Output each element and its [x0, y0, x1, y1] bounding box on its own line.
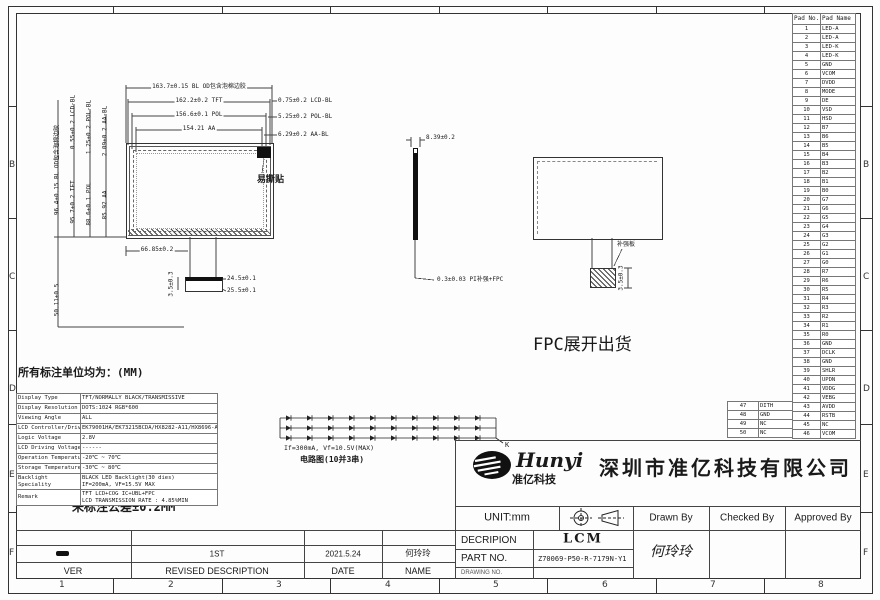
- table-cell: B3: [821, 160, 856, 169]
- table-cell: 12: [793, 124, 821, 133]
- stiffener-label: 补强板: [617, 242, 635, 249]
- table-cell: 26: [793, 250, 821, 259]
- table-cell: R0: [821, 331, 856, 340]
- table-cell: DE: [821, 97, 856, 106]
- table-row: 40UPDN: [793, 376, 856, 385]
- revision-date-value: 2021.5.24: [325, 549, 361, 558]
- table-cell: B0: [821, 187, 856, 196]
- table-cell: 37: [793, 349, 821, 358]
- table-cell: EK79001HA/EK73215BCDA/HX8282-A11/HX8696-…: [81, 424, 218, 434]
- table-cell: R5: [821, 286, 856, 295]
- dim-tft-width: 162.2±0.2 TFT: [175, 98, 224, 105]
- table-cell: 45: [793, 421, 821, 430]
- dim-thickness: 8.39±0.2: [426, 135, 455, 142]
- table-row: 3LED-K: [793, 43, 856, 52]
- table-cell: 19: [793, 187, 821, 196]
- table-cell: 34: [793, 322, 821, 331]
- table-cell: Logic Voltage: [17, 434, 81, 444]
- table-cell: 43: [793, 403, 821, 412]
- table-cell: LCD Controller/Driver: [17, 424, 81, 434]
- table-row: LCD Controller/DriverEK79001HA/EK73215BC…: [17, 424, 218, 434]
- table-row: 2LED-A: [793, 34, 856, 43]
- table-cell: Remark: [17, 490, 81, 506]
- table-cell: 42: [793, 394, 821, 403]
- spec-table: Display TypeTFT/NORMALLY BLACK/TRANSMISS…: [16, 393, 218, 506]
- table-cell: 13: [793, 133, 821, 142]
- table-row: 29R6: [793, 277, 856, 286]
- table-row: 30R5: [793, 286, 856, 295]
- rear-inner-dash-top: [537, 161, 657, 162]
- table-row: 14B5: [793, 142, 856, 151]
- table-row: 50NC: [728, 429, 793, 438]
- pad-no-header: Pad No.: [793, 14, 821, 25]
- table-cell: 28: [793, 268, 821, 277]
- table-cell: 35: [793, 331, 821, 340]
- table-row: 44RSTB: [793, 412, 856, 421]
- table-cell: G2: [821, 241, 856, 250]
- dim-fpc-tail: 3.5±0.3: [619, 265, 626, 290]
- table-cell: 10: [793, 106, 821, 115]
- led-circuit-note: 电路图(10并3串): [300, 455, 364, 464]
- dim-fpc-offset: 66.85±0.2: [140, 247, 175, 254]
- description-value: LCM: [563, 533, 603, 548]
- table-row: 4LED-K: [793, 52, 856, 61]
- table-cell: 29: [793, 277, 821, 286]
- table-row: 26G1: [793, 250, 856, 259]
- table-cell: 48: [728, 411, 759, 420]
- drawn-by-label: Drawn By: [649, 512, 692, 524]
- table-row: 13B6: [793, 133, 856, 142]
- table-row: Storage Temperature-30℃ ~ 80℃: [17, 464, 218, 474]
- table-cell: RSTB: [821, 412, 856, 421]
- table-row: 41VDDG: [793, 385, 856, 394]
- table-cell: 30: [793, 286, 821, 295]
- side-view-glass-notch: [414, 149, 417, 153]
- table-row: 47DITH: [728, 402, 793, 411]
- table-cell: LED-K: [821, 43, 856, 52]
- table-cell: Viewing Angle: [17, 414, 81, 424]
- table-row: 9DE: [793, 97, 856, 106]
- table-cell: VDDG: [821, 385, 856, 394]
- dim-lcd-bl-right: 0.75±0.2 LCD-BL: [278, 98, 332, 105]
- revision-stamp-icon: [56, 551, 69, 556]
- table-cell: 46: [793, 430, 821, 439]
- table-cell: 17: [793, 169, 821, 178]
- pad-name-header: Pad Name: [821, 14, 856, 25]
- table-row: 36GND: [793, 340, 856, 349]
- table-cell: 40: [793, 376, 821, 385]
- checked-by-label: Checked By: [720, 512, 774, 524]
- table-cell: 18: [793, 178, 821, 187]
- table-cell: AVDD: [821, 403, 856, 412]
- table-cell: 15: [793, 151, 821, 160]
- table-row: 22G5: [793, 214, 856, 223]
- table-row: 24G3: [793, 232, 856, 241]
- table-cell: 20: [793, 196, 821, 205]
- table-cell: 11: [793, 115, 821, 124]
- table-cell: R1: [821, 322, 856, 331]
- fpc-unfold-label: FPC展开出货: [533, 336, 632, 356]
- brand-name: Hunyi: [516, 449, 583, 472]
- table-row: 5GND: [793, 61, 856, 70]
- revision-header-description: REVISED DESCRIPTION: [165, 566, 269, 576]
- table-row: 28R7: [793, 268, 856, 277]
- table-cell: G0: [821, 259, 856, 268]
- table-cell: MODE: [821, 88, 856, 97]
- table-row: 20G7: [793, 196, 856, 205]
- table-cell: Storage Temperature: [17, 464, 81, 474]
- hunyi-logo-icon: [471, 449, 517, 483]
- table-cell: 6: [793, 70, 821, 79]
- easy-tear-sticker: [257, 147, 271, 158]
- revision-strip: 1ST 2021.5.24 何玲玲 VER REVISED DESCRIPTIO…: [16, 530, 455, 579]
- table-cell: GND: [821, 340, 856, 349]
- table-cell: 2: [793, 34, 821, 43]
- revision-name-value: 何玲玲: [405, 549, 431, 559]
- dim-connector-height: 3.5±0.3: [169, 271, 176, 296]
- dim-bl-od-height: 96.4±0.15 BL OD包含泡棉边胶: [55, 125, 62, 215]
- company-name: 深圳市准亿科技有限公司: [599, 458, 852, 481]
- table-cell: 8: [793, 88, 821, 97]
- table-cell: 14: [793, 142, 821, 151]
- table-cell: 3: [793, 43, 821, 52]
- table-cell: SHLR: [821, 367, 856, 376]
- table-cell: BLACK LED Backlight(30 dies) IF=200mA, V…: [81, 474, 218, 490]
- dim-pol-bl-right: 5.25±0.2 POL-BL: [278, 114, 332, 121]
- dim-tft-height: 95.7±0.2 TFT: [71, 180, 78, 223]
- table-cell: G7: [821, 196, 856, 205]
- table-cell: VSD: [821, 106, 856, 115]
- led-spec-note: If=300mA, Vf=10.5V(MAX): [284, 445, 374, 452]
- table-cell: HSD: [821, 115, 856, 124]
- table-cell: Display Resolution: [17, 404, 81, 414]
- table-cell: TFT LCD+COG IC+UBL+FPC LCD TRANSMISSION …: [81, 490, 218, 506]
- table-cell: 38: [793, 358, 821, 367]
- table-cell: 36: [793, 340, 821, 349]
- table-cell: R2: [821, 313, 856, 322]
- table-cell: 50: [728, 429, 759, 438]
- fpc-connector: [185, 277, 223, 292]
- table-row: Logic Voltage2.8V: [17, 434, 218, 444]
- engineering-drawing-sheet: { "sheet": { "zone_letters": ["B", "C", …: [0, 0, 880, 600]
- table-row: 12B7: [793, 124, 856, 133]
- table-cell: -20℃ ~ 70℃: [81, 454, 218, 464]
- table-cell: 47: [728, 402, 759, 411]
- pad-table-side: 47DITH48GND49NC50NC: [727, 401, 793, 438]
- table-row: Display ResolutionDOTS:1024 RGB*600: [17, 404, 218, 414]
- table-cell: B4: [821, 151, 856, 160]
- table-cell: R3: [821, 304, 856, 313]
- table-cell: NC: [759, 420, 793, 429]
- dim-connector-width-1: 24.5±0.1: [227, 276, 256, 283]
- table-row: 8MODE: [793, 88, 856, 97]
- table-cell: 21: [793, 205, 821, 214]
- table-cell: Display Type: [17, 394, 81, 404]
- table-cell: G1: [821, 250, 856, 259]
- dim-aa-bl-right: 6.29±0.2 AA-BL: [278, 132, 329, 139]
- table-cell: G3: [821, 232, 856, 241]
- table-row: 18B1: [793, 178, 856, 187]
- drawing-no-label: DRAWING NO.: [461, 570, 502, 577]
- table-cell: 32: [793, 304, 821, 313]
- table-cell: GND: [759, 411, 793, 420]
- table-cell: 24: [793, 232, 821, 241]
- table-cell: R7: [821, 268, 856, 277]
- dim-aa-height: 85.92 AA: [103, 191, 110, 220]
- revision-description-value: 1ST: [210, 549, 225, 558]
- table-cell: 25: [793, 241, 821, 250]
- rear-inner-dash-left: [537, 161, 538, 234]
- table-cell: B6: [821, 133, 856, 142]
- drawn-by-value: 何玲玲: [650, 543, 692, 559]
- table-cell: DCLK: [821, 349, 856, 358]
- table-cell: ------: [81, 444, 218, 454]
- table-cell: 39: [793, 367, 821, 376]
- table-row: 45NC: [793, 421, 856, 430]
- table-cell: 1: [793, 25, 821, 34]
- table-cell: 41: [793, 385, 821, 394]
- table-row: 35R0: [793, 331, 856, 340]
- table-row: 21G6: [793, 205, 856, 214]
- table-cell: UPDN: [821, 376, 856, 385]
- approved-by-label: Approved By: [794, 512, 851, 524]
- table-cell: 27: [793, 259, 821, 268]
- dim-pol-height: 88.6±0.1 POL: [87, 182, 94, 225]
- table-row: Viewing AngleALL: [17, 414, 218, 424]
- table-cell: 16: [793, 160, 821, 169]
- revision-header-date: DATE: [331, 566, 354, 576]
- table-row: 11HSD: [793, 115, 856, 124]
- table-cell: 31: [793, 295, 821, 304]
- table-row: Backlight SpecialityBLACK LED Backlight(…: [17, 474, 218, 490]
- table-cell: 44: [793, 412, 821, 421]
- table-row: 33R2: [793, 313, 856, 322]
- table-cell: GND: [821, 61, 856, 70]
- dim-pol-bl-top: 1.25±0.2 POL-BL: [87, 100, 94, 154]
- dim-bl-od-width: 163.7±0.15 BL OD包含泡棉边胶: [151, 84, 247, 91]
- table-row: 27G0: [793, 259, 856, 268]
- unit-label: UNIT:mm: [484, 512, 530, 525]
- table-cell: LED-K: [821, 52, 856, 61]
- units-note: 所有标注单位均为：(MM): [18, 367, 144, 380]
- table-cell: G6: [821, 205, 856, 214]
- table-cell: 7: [793, 79, 821, 88]
- table-row: 1LED-A: [793, 25, 856, 34]
- table-row: 34R1: [793, 322, 856, 331]
- active-area-outline: [136, 153, 264, 229]
- table-row: 43AVDD: [793, 403, 856, 412]
- table-cell: TFT/NORMALLY BLACK/TRANSMISSIVE: [81, 394, 218, 404]
- table-row: 23G4: [793, 223, 856, 232]
- table-row: 6VCOM: [793, 70, 856, 79]
- table-row: 46VCOM: [793, 430, 856, 439]
- table-cell: NC: [759, 429, 793, 438]
- table-row: 32R3: [793, 304, 856, 313]
- table-cell: R6: [821, 277, 856, 286]
- table-cell: R4: [821, 295, 856, 304]
- dim-aa-width: 154.21 AA: [182, 126, 217, 133]
- projection-symbol-icon: [566, 508, 628, 528]
- table-cell: 33: [793, 313, 821, 322]
- table-row: Display TypeTFT/NORMALLY BLACK/TRANSMISS…: [17, 394, 218, 404]
- part-no-label: PART NO.: [461, 553, 507, 565]
- table-cell: -30℃ ~ 80℃: [81, 464, 218, 474]
- table-cell: 5: [793, 61, 821, 70]
- table-row: 39SHLR: [793, 367, 856, 376]
- table-cell: LED-A: [821, 25, 856, 34]
- pad-table: Pad No. Pad Name 1LED-A2LED-A3LED-K4LED-…: [792, 13, 856, 439]
- table-row: Operation Temperature-20℃ ~ 70℃: [17, 454, 218, 464]
- table-cell: 23: [793, 223, 821, 232]
- title-block: Hunyi 准亿科技 深圳市准亿科技有限公司 UNIT:mm Drawn By …: [455, 440, 861, 579]
- dim-fpc-length: 50.11±0.5: [55, 284, 62, 317]
- table-row: 15B4: [793, 151, 856, 160]
- side-view-bar: [413, 148, 418, 240]
- table-cell: 2.8V: [81, 434, 218, 444]
- easy-tear-label: 易撕贴: [257, 175, 284, 185]
- table-row: 38GND: [793, 358, 856, 367]
- table-cell: ALL: [81, 414, 218, 424]
- table-cell: G4: [821, 223, 856, 232]
- table-cell: VEBG: [821, 394, 856, 403]
- table-cell: VCOM: [821, 70, 856, 79]
- table-cell: DOTS:1024 RGB*600: [81, 404, 218, 414]
- rear-outline: [533, 157, 663, 240]
- revision-header-ver: VER: [64, 566, 83, 576]
- table-row: LCD Driving Voltage------: [17, 444, 218, 454]
- table-row: 19B0: [793, 187, 856, 196]
- table-row: 17B2: [793, 169, 856, 178]
- table-cell: G5: [821, 214, 856, 223]
- table-row: 42VEBG: [793, 394, 856, 403]
- table-row: 49NC: [728, 420, 793, 429]
- table-cell: 9: [793, 97, 821, 106]
- table-cell: DITH: [759, 402, 793, 411]
- table-row: RemarkTFT LCD+COG IC+UBL+FPC LCD TRANSMI…: [17, 490, 218, 506]
- part-no-value: Z70069-P50-R-7179N-Y1: [538, 555, 627, 563]
- dim-lcd-bl-top: 0.55±0.2 LCD-BL: [71, 95, 78, 149]
- table-cell: NC: [821, 421, 856, 430]
- revision-header-name: NAME: [405, 566, 431, 576]
- table-cell: B1: [821, 178, 856, 187]
- brand-sub-name: 准亿科技: [512, 474, 556, 487]
- dim-connector-width-2: 25.5±0.1: [227, 288, 256, 295]
- table-cell: LED-A: [821, 34, 856, 43]
- table-row: 48GND: [728, 411, 793, 420]
- dim-pol-width: 156.6±0.1 POL: [175, 112, 224, 119]
- dim-pi-stiffener-fpc: 0.3±0.03 PI补强+FPC: [437, 277, 503, 284]
- table-cell: 49: [728, 420, 759, 429]
- table-cell: B2: [821, 169, 856, 178]
- table-row: 10VSD: [793, 106, 856, 115]
- table-cell: B5: [821, 142, 856, 151]
- table-cell: LCD Driving Voltage: [17, 444, 81, 454]
- table-cell: 22: [793, 214, 821, 223]
- table-cell: 4: [793, 52, 821, 61]
- pad-table-header-row: Pad No. Pad Name: [793, 14, 856, 25]
- dim-aa-bl-top: 2.09±0.2 AA-BL: [103, 106, 110, 157]
- table-cell: Backlight Speciality: [17, 474, 81, 490]
- table-row: 37DCLK: [793, 349, 856, 358]
- table-row: 16B3: [793, 160, 856, 169]
- description-label: DECRIPION: [461, 535, 517, 547]
- table-row: 7DVDD: [793, 79, 856, 88]
- table-cell: GND: [821, 358, 856, 367]
- table-cell: VCOM: [821, 430, 856, 439]
- table-row: 25G2: [793, 241, 856, 250]
- table-row: 31R4: [793, 295, 856, 304]
- table-cell: B7: [821, 124, 856, 133]
- gold-finger-area: [590, 268, 616, 288]
- table-cell: DVDD: [821, 79, 856, 88]
- table-cell: Operation Temperature: [17, 454, 81, 464]
